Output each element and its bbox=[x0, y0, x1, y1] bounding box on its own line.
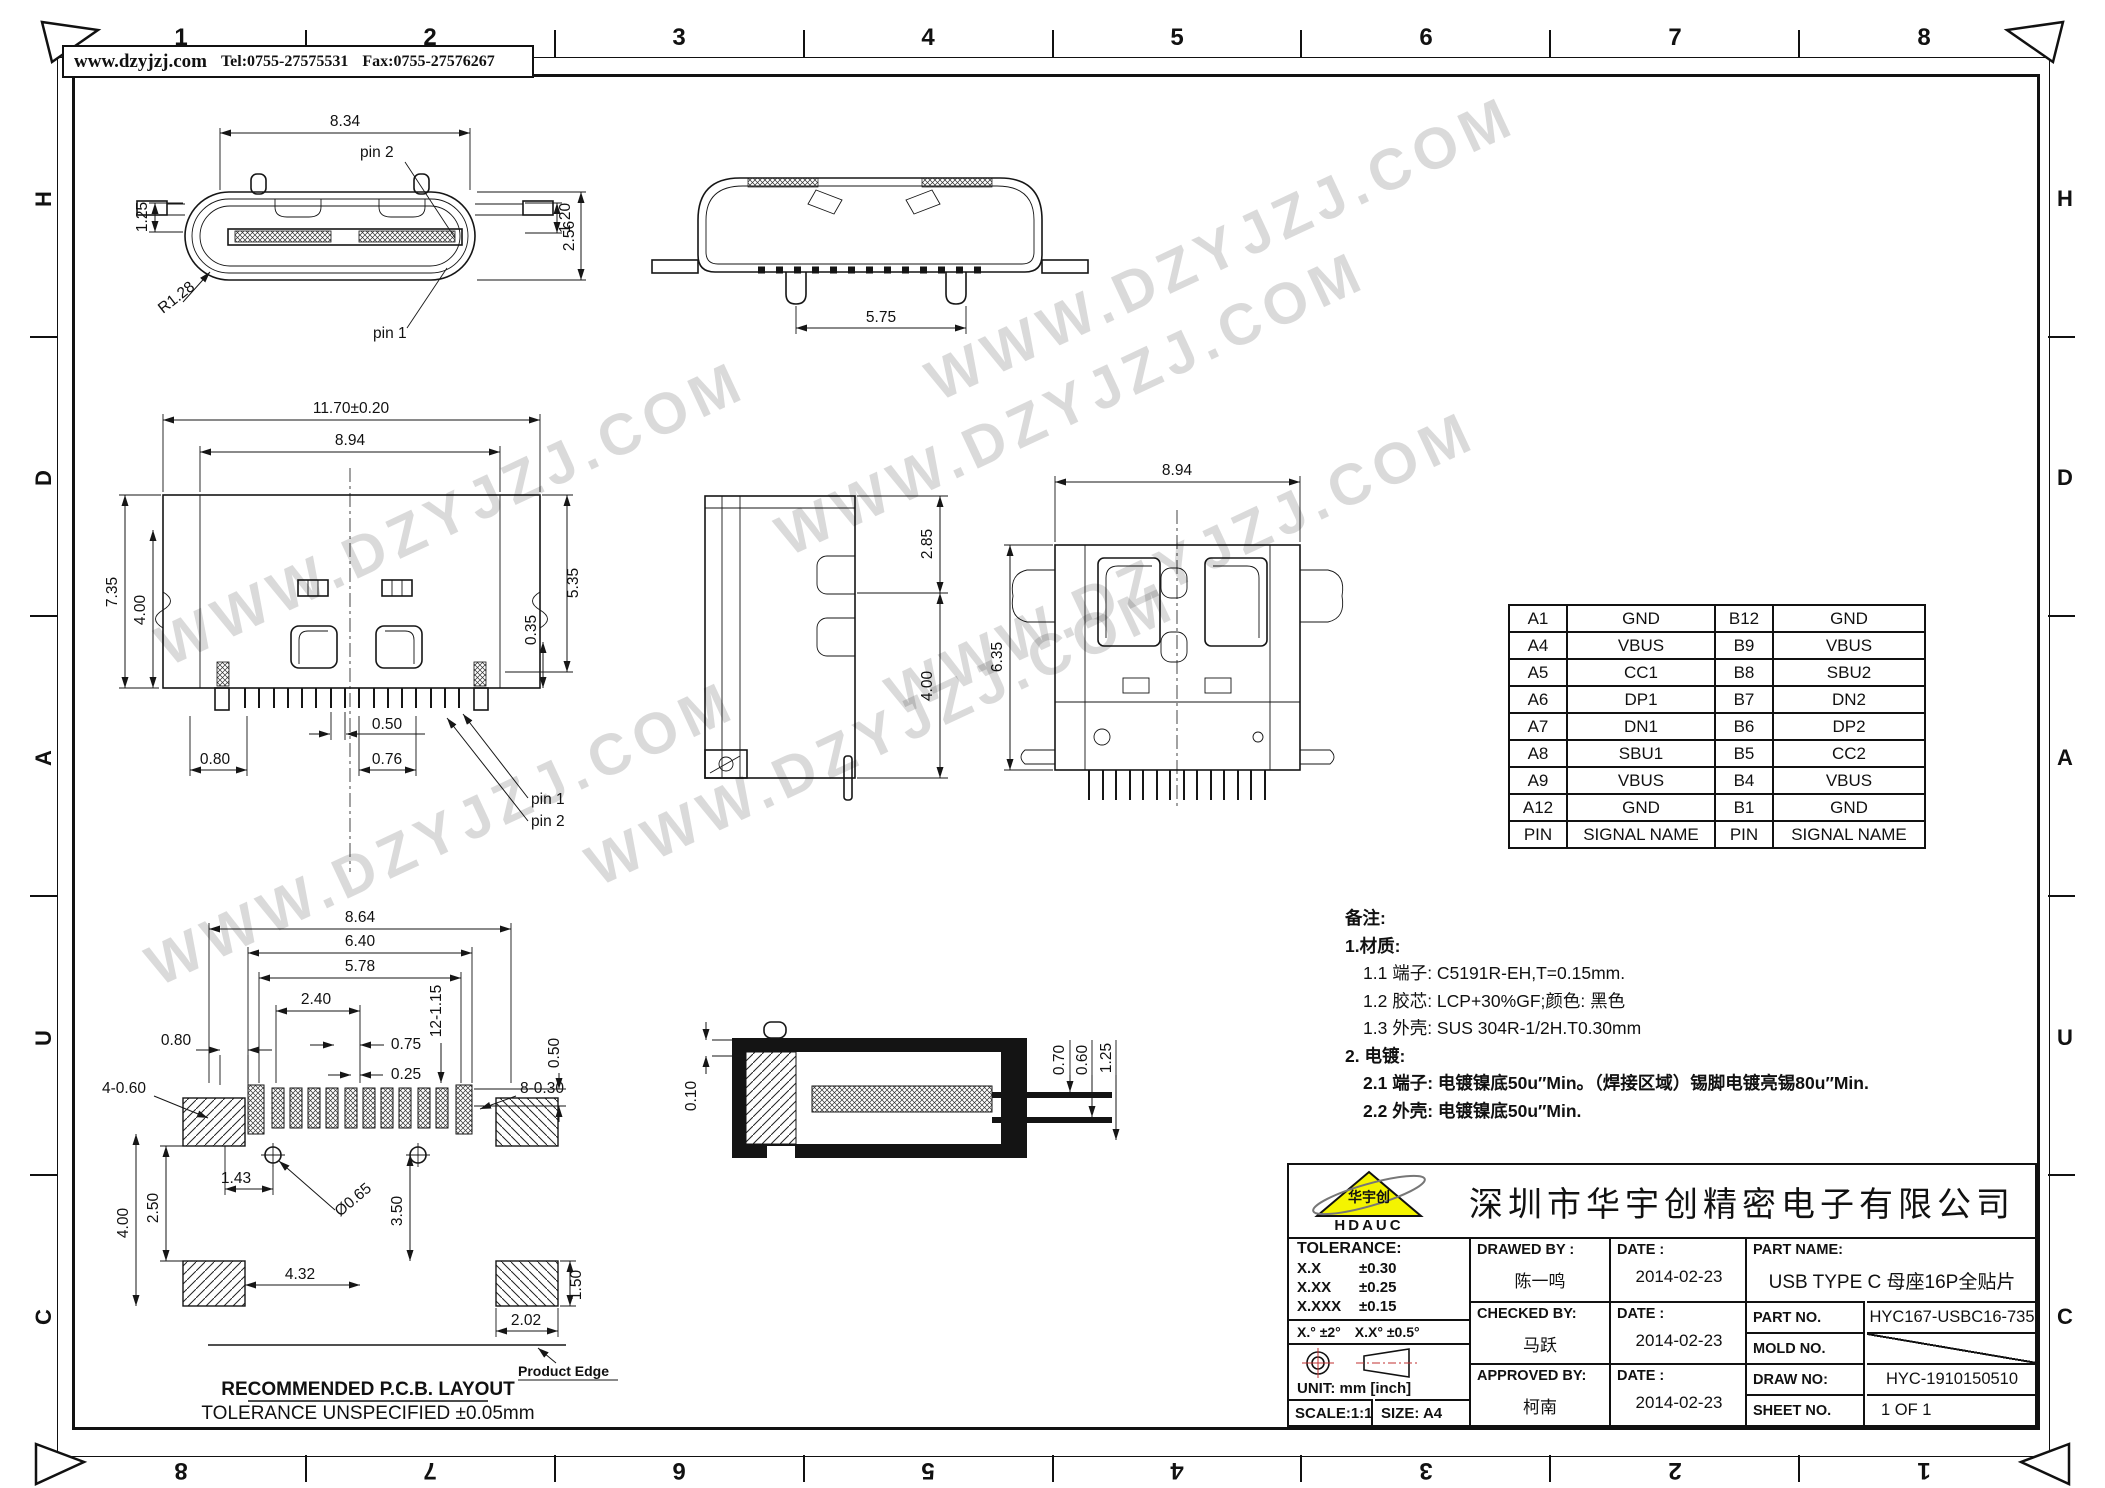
shield-pad bbox=[496, 1261, 558, 1306]
zone-number-top-7: 7 bbox=[1655, 24, 1695, 52]
dim-text: 0.50 bbox=[546, 1038, 563, 1069]
dim-text: 0.80 bbox=[200, 751, 231, 768]
pin-cell: A6 bbox=[1509, 686, 1567, 713]
sheet-no-label-cell: SHEET NO. bbox=[1747, 1394, 1865, 1425]
pin-cell: A4 bbox=[1509, 632, 1567, 659]
shield-pad bbox=[496, 1098, 558, 1146]
angle-tolerance-row: X.° ±2° X.X° ±0.5° bbox=[1289, 1319, 1469, 1343]
logo-text: 华宇创 bbox=[1348, 1189, 1390, 1205]
view-cross-section: 0.10 0.70 0.60 1.25 bbox=[672, 1000, 1152, 1200]
tolerance-title: TOLERANCE: bbox=[1289, 1239, 1469, 1259]
dim-text: 2.40 bbox=[301, 991, 332, 1008]
pin1-label: pin 1 bbox=[531, 791, 565, 808]
scale-label: SCALE:1:1 bbox=[1295, 1405, 1373, 1422]
part-no-value-cell: HYC167-USBC16-735 bbox=[1867, 1301, 2037, 1332]
signal-cell: SBU1 bbox=[1567, 740, 1715, 767]
part-no-label: PART NO. bbox=[1753, 1310, 1821, 1326]
sheet-no-label: SHEET NO. bbox=[1753, 1403, 1831, 1419]
dim-text: 0.80 bbox=[161, 1032, 192, 1049]
dim-text: 0.10 bbox=[683, 1081, 700, 1112]
view-elevation: 11.70±0.20 8.94 7.35 4.00 5.35 0.35 bbox=[95, 380, 595, 880]
notes-block: 备注: 1.材质: 1.1 端子: C5191R-EH,T=0.15mm. 1.… bbox=[1345, 905, 2010, 1125]
dim-text: 0.60 bbox=[1074, 1045, 1091, 1076]
product-edge-label: Product Edge bbox=[518, 1363, 609, 1379]
draw-no-value: HYC-1910150510 bbox=[1886, 1370, 2018, 1389]
dim-text: 2.50 bbox=[145, 1193, 162, 1224]
dim-text: 0.25 bbox=[391, 1066, 421, 1083]
zone-number-bottom-4: 4 bbox=[1157, 1456, 1197, 1484]
pcb-tolerance: TOLERANCE UNSPECIFIED ±0.05mm bbox=[201, 1403, 534, 1424]
smt-pads bbox=[248, 1085, 472, 1134]
dim-text: 0.76 bbox=[372, 751, 402, 768]
shield-pad bbox=[183, 1261, 245, 1306]
date-label: DATE : bbox=[1617, 1368, 1664, 1384]
title-block: 华宇创 HDAUC 深圳市华宇创精密电子有限公司 TOLERANCE: X.X±… bbox=[1287, 1163, 2037, 1427]
dim-text: 0.70 bbox=[1051, 1045, 1068, 1076]
zone-number-top-5: 5 bbox=[1157, 24, 1197, 52]
zone-letter-right-h: H bbox=[2050, 186, 2080, 212]
dim-text: 4.00 bbox=[919, 671, 936, 702]
contact-bar: www.dzyjzj.com Tel:0755-27575531 Fax:075… bbox=[62, 45, 534, 78]
dim-text: 6.40 bbox=[345, 933, 376, 950]
pin-cell: A8 bbox=[1509, 740, 1567, 767]
pin-cell: B7 bbox=[1715, 686, 1773, 713]
unit-label: UNIT: mm [inch] bbox=[1289, 1380, 1469, 1397]
dim-text: 4.32 bbox=[285, 1266, 315, 1283]
size-label: SIZE: A4 bbox=[1381, 1405, 1442, 1422]
approved-date-cell: DATE : 2014-02-23 bbox=[1609, 1363, 1747, 1425]
zone-letter-left-u: U bbox=[31, 1023, 57, 1053]
part-no-value: HYC167-USBC16-735 bbox=[1869, 1308, 2034, 1327]
part-no-label-cell: PART NO. bbox=[1747, 1301, 1865, 1332]
signal-cell: GND bbox=[1773, 794, 1925, 821]
pin-cell: A12 bbox=[1509, 794, 1567, 821]
date-label: DATE : bbox=[1617, 1242, 1664, 1258]
pin-cell: A7 bbox=[1509, 713, 1567, 740]
dim-text: 0.50 bbox=[372, 716, 403, 733]
part-info-box: PART NAME: USB TYPE C 母座16P全贴片 PART NO. … bbox=[1745, 1239, 2035, 1425]
pin-cell: B9 bbox=[1715, 632, 1773, 659]
dim-text: 0.75 bbox=[391, 1036, 421, 1053]
checked-by-cell: CHECKED BY: 马跃 bbox=[1471, 1301, 1609, 1363]
drawing-sheet: 1 2 3 4 5 6 7 8 8 7 6 5 4 3 2 1 H D A U … bbox=[0, 0, 2105, 1488]
pin-cell: B8 bbox=[1715, 659, 1773, 686]
drawed-by-cell: DRAWED BY : 陈一鸣 bbox=[1471, 1239, 1609, 1301]
signal-cell: DP2 bbox=[1773, 713, 1925, 740]
pin1-label: pin 1 bbox=[373, 325, 407, 342]
approved-by-label: APPROVED BY: bbox=[1477, 1368, 1586, 1384]
projection-symbol-icon bbox=[1294, 1346, 1464, 1380]
logo-subtitle: HDAUC bbox=[1334, 1217, 1403, 1234]
view-side-profile: 2.85 4.00 bbox=[650, 468, 1000, 818]
zone-number-top-4: 4 bbox=[908, 24, 948, 52]
dim-text: 5.75 bbox=[866, 309, 896, 326]
pin-cell: B6 bbox=[1715, 713, 1773, 740]
signal-cell: VBUS bbox=[1567, 767, 1715, 794]
dim-text: 2.02 bbox=[511, 1312, 541, 1329]
zone-number-bottom-3: 3 bbox=[1406, 1456, 1446, 1484]
zone-number-top-3: 3 bbox=[659, 24, 699, 52]
table-row: A6 DP1 B7 DN2 bbox=[1509, 686, 1925, 713]
view-top: 8.94 6.35 bbox=[965, 450, 1385, 820]
mold-no-label-cell: MOLD NO. bbox=[1747, 1332, 1865, 1363]
zone-number-bottom-8: 8 bbox=[161, 1456, 201, 1484]
zone-number-bottom-2: 2 bbox=[1655, 1456, 1695, 1484]
dim-text: 1.25 bbox=[1098, 1043, 1115, 1073]
dim-text: 0.35 bbox=[523, 615, 540, 645]
zone-letter-right-d: D bbox=[2050, 465, 2080, 491]
angle-tol-2: X.X° ±0.5° bbox=[1355, 1324, 1420, 1340]
size-cell: SIZE: A4 bbox=[1375, 1399, 1469, 1425]
company-name: 深圳市华宇创精密电子有限公司 bbox=[1449, 1177, 2035, 1226]
signal-cell: DP1 bbox=[1567, 686, 1715, 713]
dim-text: 8.94 bbox=[335, 432, 366, 449]
dim-text: 3.50 bbox=[389, 1196, 406, 1227]
tol-value: ±0.30 bbox=[1359, 1260, 1396, 1277]
dim-text: 4-0.60 bbox=[102, 1080, 146, 1097]
drawed-date-cell: DATE : 2014-02-23 bbox=[1609, 1239, 1747, 1301]
zone-letter-right-a: A bbox=[2050, 745, 2080, 771]
title-block-header: 华宇创 HDAUC 深圳市华宇创精密电子有限公司 bbox=[1289, 1165, 2035, 1239]
mold-no-value-cell bbox=[1867, 1332, 2037, 1363]
dim-text: 8.64 bbox=[345, 909, 376, 926]
approved-date: 2014-02-23 bbox=[1611, 1393, 1747, 1413]
sheet-no-value-cell: 1 OF 1 bbox=[1867, 1394, 2037, 1425]
checked-date-cell: DATE : 2014-02-23 bbox=[1609, 1301, 1747, 1363]
table-row: A5 CC1 B8 SBU2 bbox=[1509, 659, 1925, 686]
sheet-no-value: 1 OF 1 bbox=[1881, 1401, 1931, 1420]
dim-text: 2.85 bbox=[919, 529, 936, 559]
zone-letter-left-c: C bbox=[31, 1302, 57, 1332]
company-logo: 华宇创 HDAUC bbox=[1289, 1165, 1449, 1237]
dim-text: 4.00 bbox=[132, 595, 149, 626]
table-footer-row: PIN SIGNAL NAME PIN SIGNAL NAME bbox=[1509, 821, 1925, 848]
signal-header-cell: SIGNAL NAME bbox=[1567, 821, 1715, 848]
pcb-title: RECOMMENDED P.C.B. LAYOUT bbox=[221, 1379, 515, 1400]
dim-text: 8.34 bbox=[330, 113, 361, 130]
note-line: 1.1 端子: C5191R-EH,T=0.15mm. bbox=[1345, 960, 2010, 988]
pin-signal-table: A1 GND B12 GND A4 VBUS B9 VBUS A5 CC1 B8… bbox=[1508, 604, 1926, 849]
signal-cell: GND bbox=[1567, 605, 1715, 632]
tol-label: X.XXX bbox=[1297, 1298, 1359, 1315]
zone-letter-left-a: A bbox=[31, 743, 57, 773]
signal-cell: DN1 bbox=[1567, 713, 1715, 740]
tol-value: ±0.15 bbox=[1359, 1298, 1396, 1315]
note-line: 1.2 胶芯: LCP+30%GF;颜色: 黑色 bbox=[1345, 988, 2010, 1016]
part-name-cell: PART NAME: USB TYPE C 母座16P全贴片 bbox=[1747, 1239, 2037, 1301]
pin2-label: pin 2 bbox=[360, 144, 394, 161]
dim-text: 8-0.30 bbox=[520, 1080, 564, 1097]
tolerance-box: TOLERANCE: X.X±0.30 X.XX±0.25 X.XXX±0.15 bbox=[1289, 1239, 1469, 1319]
dim-text: 7.35 bbox=[104, 577, 121, 607]
dim-text: 11.70±0.20 bbox=[313, 400, 390, 417]
table-row: A12 GND B1 GND bbox=[1509, 794, 1925, 821]
signal-cell: SBU2 bbox=[1773, 659, 1925, 686]
view-rear-shell: 5.75 bbox=[640, 160, 1100, 345]
signal-cell: CC2 bbox=[1773, 740, 1925, 767]
note-line: 2.2 外壳: 电镀镍底50u″Min. bbox=[1345, 1098, 2010, 1126]
logo-triangle-icon: 华宇创 bbox=[1299, 1169, 1439, 1221]
draw-no-value-cell: HYC-1910150510 bbox=[1867, 1363, 2037, 1394]
fax-label: Fax:0755-27576267 bbox=[362, 53, 494, 71]
drawed-date: 2014-02-23 bbox=[1611, 1267, 1747, 1287]
note-line: 2.1 端子: 电镀镍底50u″Min。（焊接区域）锡脚电镀亮锡80u″Min. bbox=[1345, 1070, 2010, 1098]
dim-text: 4.00 bbox=[115, 1208, 132, 1239]
zone-number-bottom-1: 1 bbox=[1904, 1456, 1944, 1484]
zone-letter-right-u: U bbox=[2050, 1025, 2080, 1051]
pin-cell: B12 bbox=[1715, 605, 1773, 632]
note-line: 2. 电镀: bbox=[1345, 1043, 2010, 1071]
tol-value: ±0.25 bbox=[1359, 1279, 1396, 1296]
date-label: DATE : bbox=[1617, 1306, 1664, 1322]
dim-text: 12-1.15 bbox=[428, 985, 445, 1038]
dim-text: 5.78 bbox=[345, 958, 375, 975]
part-name-value: USB TYPE C 母座16P全贴片 bbox=[1747, 1267, 2037, 1294]
checked-by-label: CHECKED BY: bbox=[1477, 1306, 1577, 1322]
dim-text: 6.35 bbox=[989, 642, 1006, 672]
drawed-by-name: 陈一鸣 bbox=[1471, 1267, 1609, 1292]
dim-text: 1.43 bbox=[221, 1170, 251, 1187]
pin-cell: B1 bbox=[1715, 794, 1773, 821]
note-line: 1.材质: bbox=[1345, 933, 2010, 961]
zone-number-top-6: 6 bbox=[1406, 24, 1446, 52]
pin-cell: B4 bbox=[1715, 767, 1773, 794]
signal-cell: VBUS bbox=[1773, 632, 1925, 659]
signal-cell: CC1 bbox=[1567, 659, 1715, 686]
website-label: www.dzyjzj.com bbox=[74, 51, 207, 73]
projection-unit-box: UNIT: mm [inch] bbox=[1289, 1343, 1469, 1399]
tel-label: Tel:0755-27575531 bbox=[221, 53, 348, 71]
view-pcb-layout: 8.64 6.40 5.78 2.40 0.75 0.25 0.80 4-0.6… bbox=[88, 893, 628, 1423]
zone-letter-right-c: C bbox=[2050, 1304, 2080, 1330]
signal-cell: GND bbox=[1773, 605, 1925, 632]
zone-letter-left-d: D bbox=[31, 463, 57, 493]
checked-date: 2014-02-23 bbox=[1611, 1331, 1747, 1351]
dim-text: 1.50 bbox=[568, 1270, 585, 1301]
dim-text: 8.94 bbox=[1162, 462, 1193, 479]
view-front-face: 8.34 pin 2 1.25 1.20 2.56 pin 1 R1.28 bbox=[125, 100, 595, 345]
signal-cell: DN2 bbox=[1773, 686, 1925, 713]
dim-text: 1.25 bbox=[134, 202, 151, 232]
checked-by-name: 马跃 bbox=[1471, 1331, 1609, 1356]
angle-tol-1: X.° ±2° bbox=[1297, 1324, 1341, 1340]
table-row: A9 VBUS B4 VBUS bbox=[1509, 767, 1925, 794]
dim-text: 2.56 bbox=[561, 221, 578, 251]
signal-cell: GND bbox=[1567, 794, 1715, 821]
draw-no-label-cell: DRAW NO: bbox=[1747, 1363, 1865, 1394]
pin2-label: pin 2 bbox=[531, 813, 565, 830]
pin-cell: B5 bbox=[1715, 740, 1773, 767]
mold-no-label: MOLD NO. bbox=[1753, 1341, 1826, 1357]
approved-by-name: 柯南 bbox=[1471, 1393, 1609, 1418]
pin-header-cell: PIN bbox=[1715, 821, 1773, 848]
pin-cell: A1 bbox=[1509, 605, 1567, 632]
approved-by-cell: APPROVED BY: 柯南 bbox=[1471, 1363, 1609, 1425]
pin-cell: A5 bbox=[1509, 659, 1567, 686]
zone-number-bottom-5: 5 bbox=[908, 1456, 948, 1484]
dim-text: 5.35 bbox=[565, 568, 582, 598]
table-row: A1 GND B12 GND bbox=[1509, 605, 1925, 632]
pin-cell: A9 bbox=[1509, 767, 1567, 794]
table-row: A4 VBUS B9 VBUS bbox=[1509, 632, 1925, 659]
dim-text: R1.28 bbox=[155, 278, 198, 317]
signal-cell: VBUS bbox=[1773, 767, 1925, 794]
table-row: A8 SBU1 B5 CC2 bbox=[1509, 740, 1925, 767]
notes-title: 备注: bbox=[1345, 905, 2010, 933]
scale-cell: SCALE:1:1 bbox=[1289, 1399, 1373, 1425]
zone-number-bottom-6: 6 bbox=[659, 1456, 699, 1484]
signatures-box: DRAWED BY : 陈一鸣 DATE : 2014-02-23 CHECKE… bbox=[1469, 1239, 1745, 1425]
zone-letter-left-h: H bbox=[31, 184, 57, 214]
signal-header-cell: SIGNAL NAME bbox=[1773, 821, 1925, 848]
part-name-label: PART NAME: bbox=[1753, 1242, 1843, 1258]
note-line: 1.3 外壳: SUS 304R-1/2H.T0.30mm bbox=[1345, 1015, 2010, 1043]
table-row: A7 DN1 B6 DP2 bbox=[1509, 713, 1925, 740]
pin-header-cell: PIN bbox=[1509, 821, 1567, 848]
dim-text: Ø0.65 bbox=[332, 1180, 375, 1220]
drawed-by-label: DRAWED BY : bbox=[1477, 1242, 1574, 1258]
tol-label: X.X bbox=[1297, 1260, 1359, 1277]
draw-no-label: DRAW NO: bbox=[1753, 1372, 1828, 1388]
shield-pad bbox=[183, 1098, 245, 1146]
zone-number-top-8: 8 bbox=[1904, 24, 1944, 52]
tol-label: X.XX bbox=[1297, 1279, 1359, 1296]
signal-cell: VBUS bbox=[1567, 632, 1715, 659]
zone-number-bottom-7: 7 bbox=[410, 1456, 450, 1484]
